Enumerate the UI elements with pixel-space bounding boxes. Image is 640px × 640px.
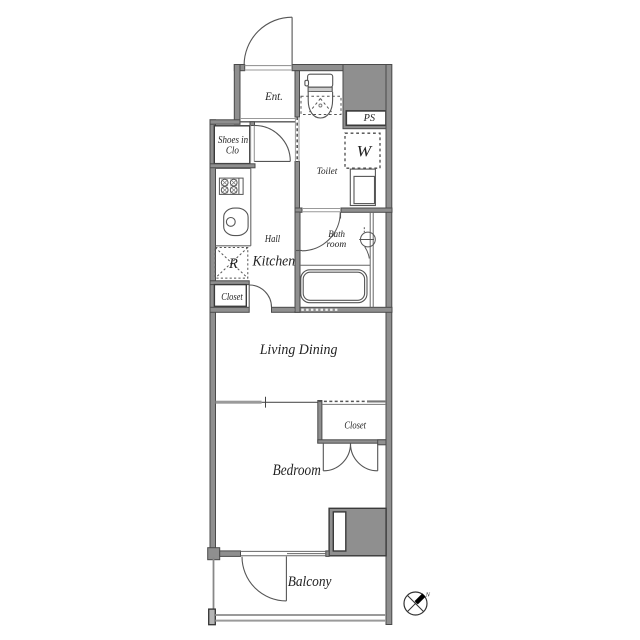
svg-text:room: room [327,240,347,250]
svg-text:Toilet: Toilet [317,166,338,177]
svg-text:Ent.: Ent. [264,89,283,103]
svg-text:Closet: Closet [344,421,366,432]
svg-text:Bath: Bath [328,230,345,240]
svg-text:Kitchen: Kitchen [252,254,296,270]
svg-text:Shoes in: Shoes in [218,135,248,146]
svg-text:N: N [425,592,431,599]
svg-text:Bedroom: Bedroom [273,462,321,479]
svg-text:PS: PS [363,113,375,124]
svg-text:Living Dining: Living Dining [259,342,338,358]
svg-text:Balcony: Balcony [288,574,332,590]
svg-text:Hall: Hall [264,234,280,245]
svg-text:R: R [228,256,238,272]
svg-text:Clo: Clo [226,146,239,157]
svg-text:Closet: Closet [221,292,243,303]
svg-text:W: W [357,144,374,161]
